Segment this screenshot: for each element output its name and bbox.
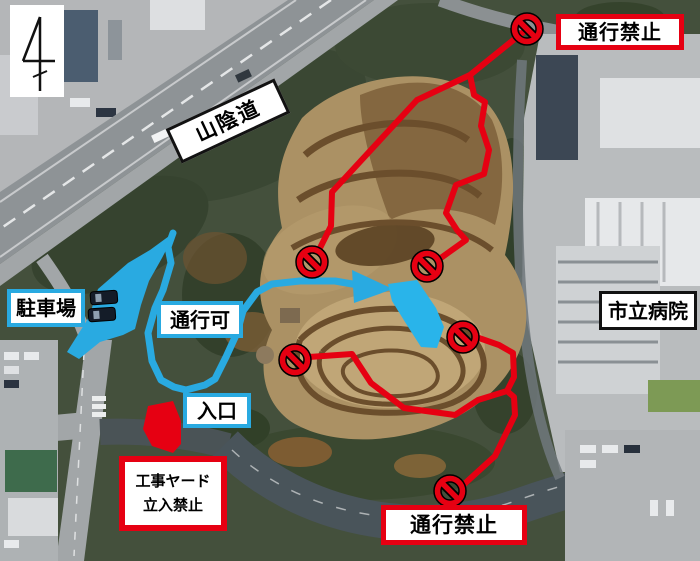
parking-label: 駐車場 — [7, 289, 85, 327]
entrance-label: 入口 — [183, 393, 251, 428]
north-arrow-icon — [10, 5, 64, 97]
no-entry-label-bottom: 通行禁止 — [381, 505, 527, 545]
car-icon — [88, 307, 116, 322]
site-structure — [280, 308, 300, 323]
no-entry-icon — [451, 325, 476, 350]
green-area — [648, 380, 700, 412]
no-entry-icon — [438, 479, 463, 504]
white-building — [8, 498, 58, 536]
round-structure — [256, 346, 274, 364]
annotated-aerial-map: 通行禁止 山陰道 駐車場 通行可 入口 工事ヤード 立入禁止 市立病院 通行禁止 — [0, 0, 700, 561]
passage-allowed-label: 通行可 — [157, 301, 243, 338]
car-icon — [90, 290, 118, 305]
no-entry-label-top: 通行禁止 — [556, 14, 684, 50]
construction-yard-label-line2: 立入禁止 — [143, 498, 203, 513]
green-roof-building — [5, 450, 57, 492]
construction-yard-label: 工事ヤード 立入禁止 — [119, 456, 227, 531]
north-arrow — [10, 5, 64, 97]
hospital-label: 市立病院 — [599, 291, 697, 330]
no-entry-icon — [283, 348, 308, 373]
construction-yard-label-line1: 工事ヤード — [135, 474, 210, 489]
no-entry-icon — [415, 254, 440, 279]
no-entry-icon — [300, 250, 325, 275]
aerial-basemap — [0, 0, 700, 561]
hospital-tower — [536, 55, 578, 160]
no-entry-icon — [515, 17, 540, 42]
